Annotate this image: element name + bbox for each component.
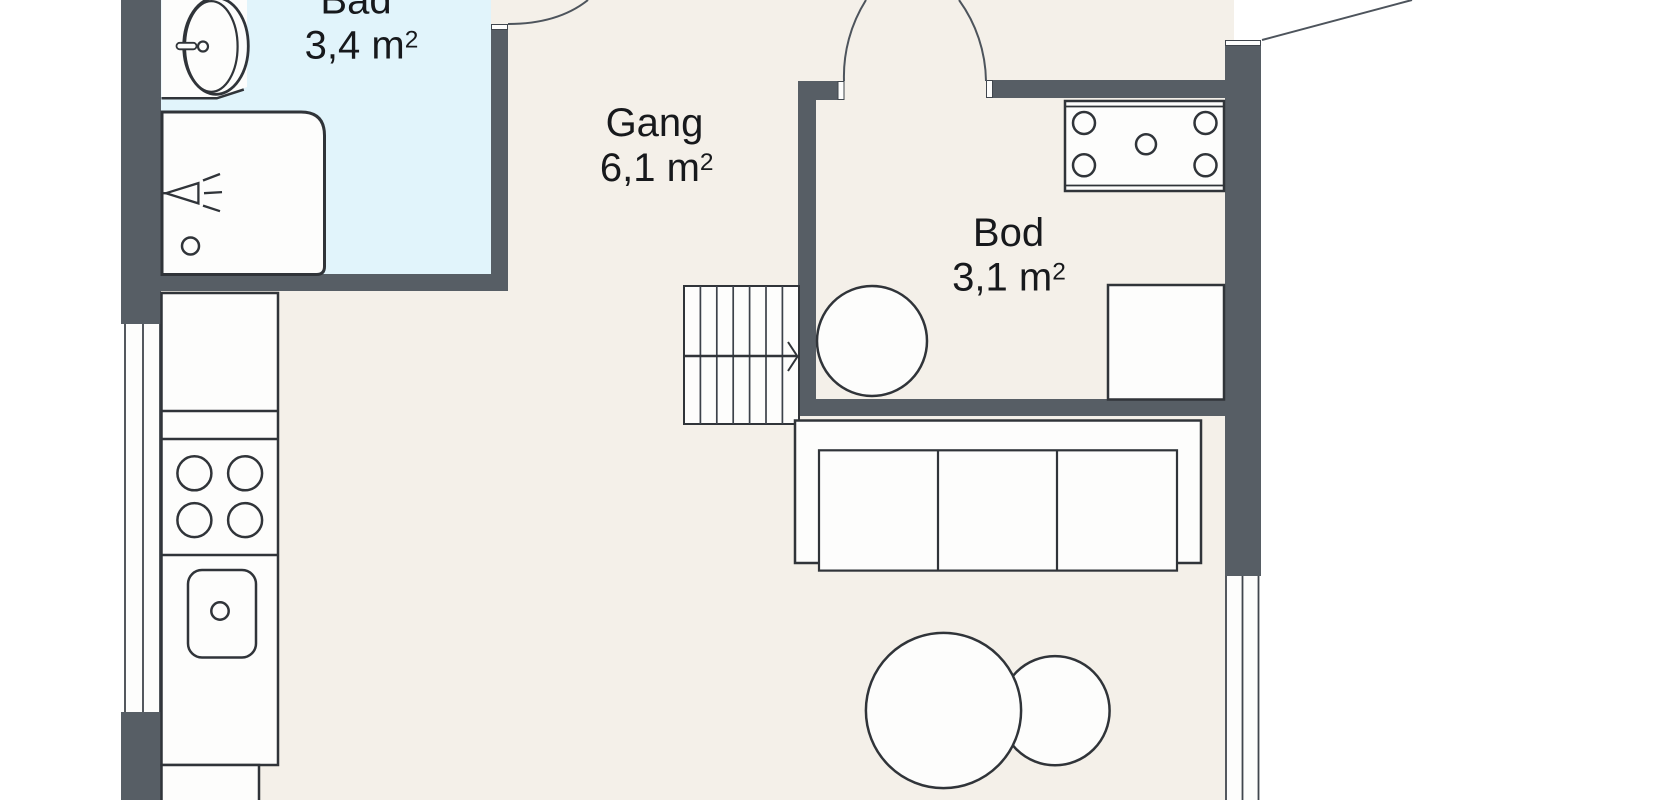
svg-text:3,4 m2: 3,4 m2 [305, 23, 419, 67]
svg-text:Bad: Bad [320, 0, 391, 23]
svg-text:Bod: Bod [973, 211, 1044, 255]
svg-text:3,1 m2: 3,1 m2 [952, 256, 1066, 300]
svg-text:6,1 m2: 6,1 m2 [600, 146, 714, 190]
svg-text:Gang: Gang [606, 101, 704, 145]
